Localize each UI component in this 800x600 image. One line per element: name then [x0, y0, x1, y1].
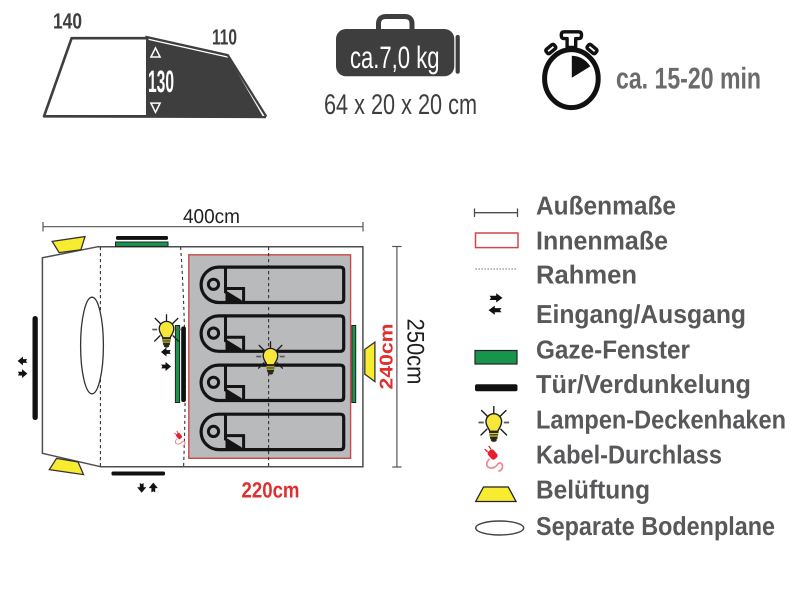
svg-text:ca. 15-20 min: ca. 15-20 min	[616, 63, 761, 96]
svg-text:250cm: 250cm	[402, 319, 429, 385]
svg-text:Separate Bodenplane: Separate Bodenplane	[536, 511, 775, 541]
svg-text:Gaze-Fenster: Gaze-Fenster	[536, 334, 690, 364]
svg-text:400cm: 400cm	[183, 206, 240, 228]
svg-text:Außenmaße: Außenmaße	[536, 191, 676, 221]
svg-text:ca.7,0 kg: ca.7,0 kg	[350, 40, 440, 75]
svg-text:220cm: 220cm	[242, 477, 300, 502]
svg-text:Lampen-Deckenhaken: Lampen-Deckenhaken	[536, 405, 786, 435]
svg-text:Tür/Verdunkelung: Tür/Verdunkelung	[536, 369, 751, 399]
svg-text:Kabel-Durchlass: Kabel-Durchlass	[536, 440, 722, 470]
svg-text:64 x 20 x 20 cm: 64 x 20 x 20 cm	[324, 89, 477, 121]
svg-text:Eingang/Ausgang: Eingang/Ausgang	[536, 299, 746, 329]
svg-text:Innenmaße: Innenmaße	[536, 225, 668, 255]
svg-text:130: 130	[148, 64, 174, 99]
svg-text:240cm: 240cm	[375, 324, 396, 390]
svg-text:110: 110	[212, 25, 237, 50]
svg-text:Rahmen: Rahmen	[536, 260, 637, 290]
svg-text:Belüftung: Belüftung	[536, 475, 650, 505]
svg-text:140: 140	[53, 9, 82, 34]
